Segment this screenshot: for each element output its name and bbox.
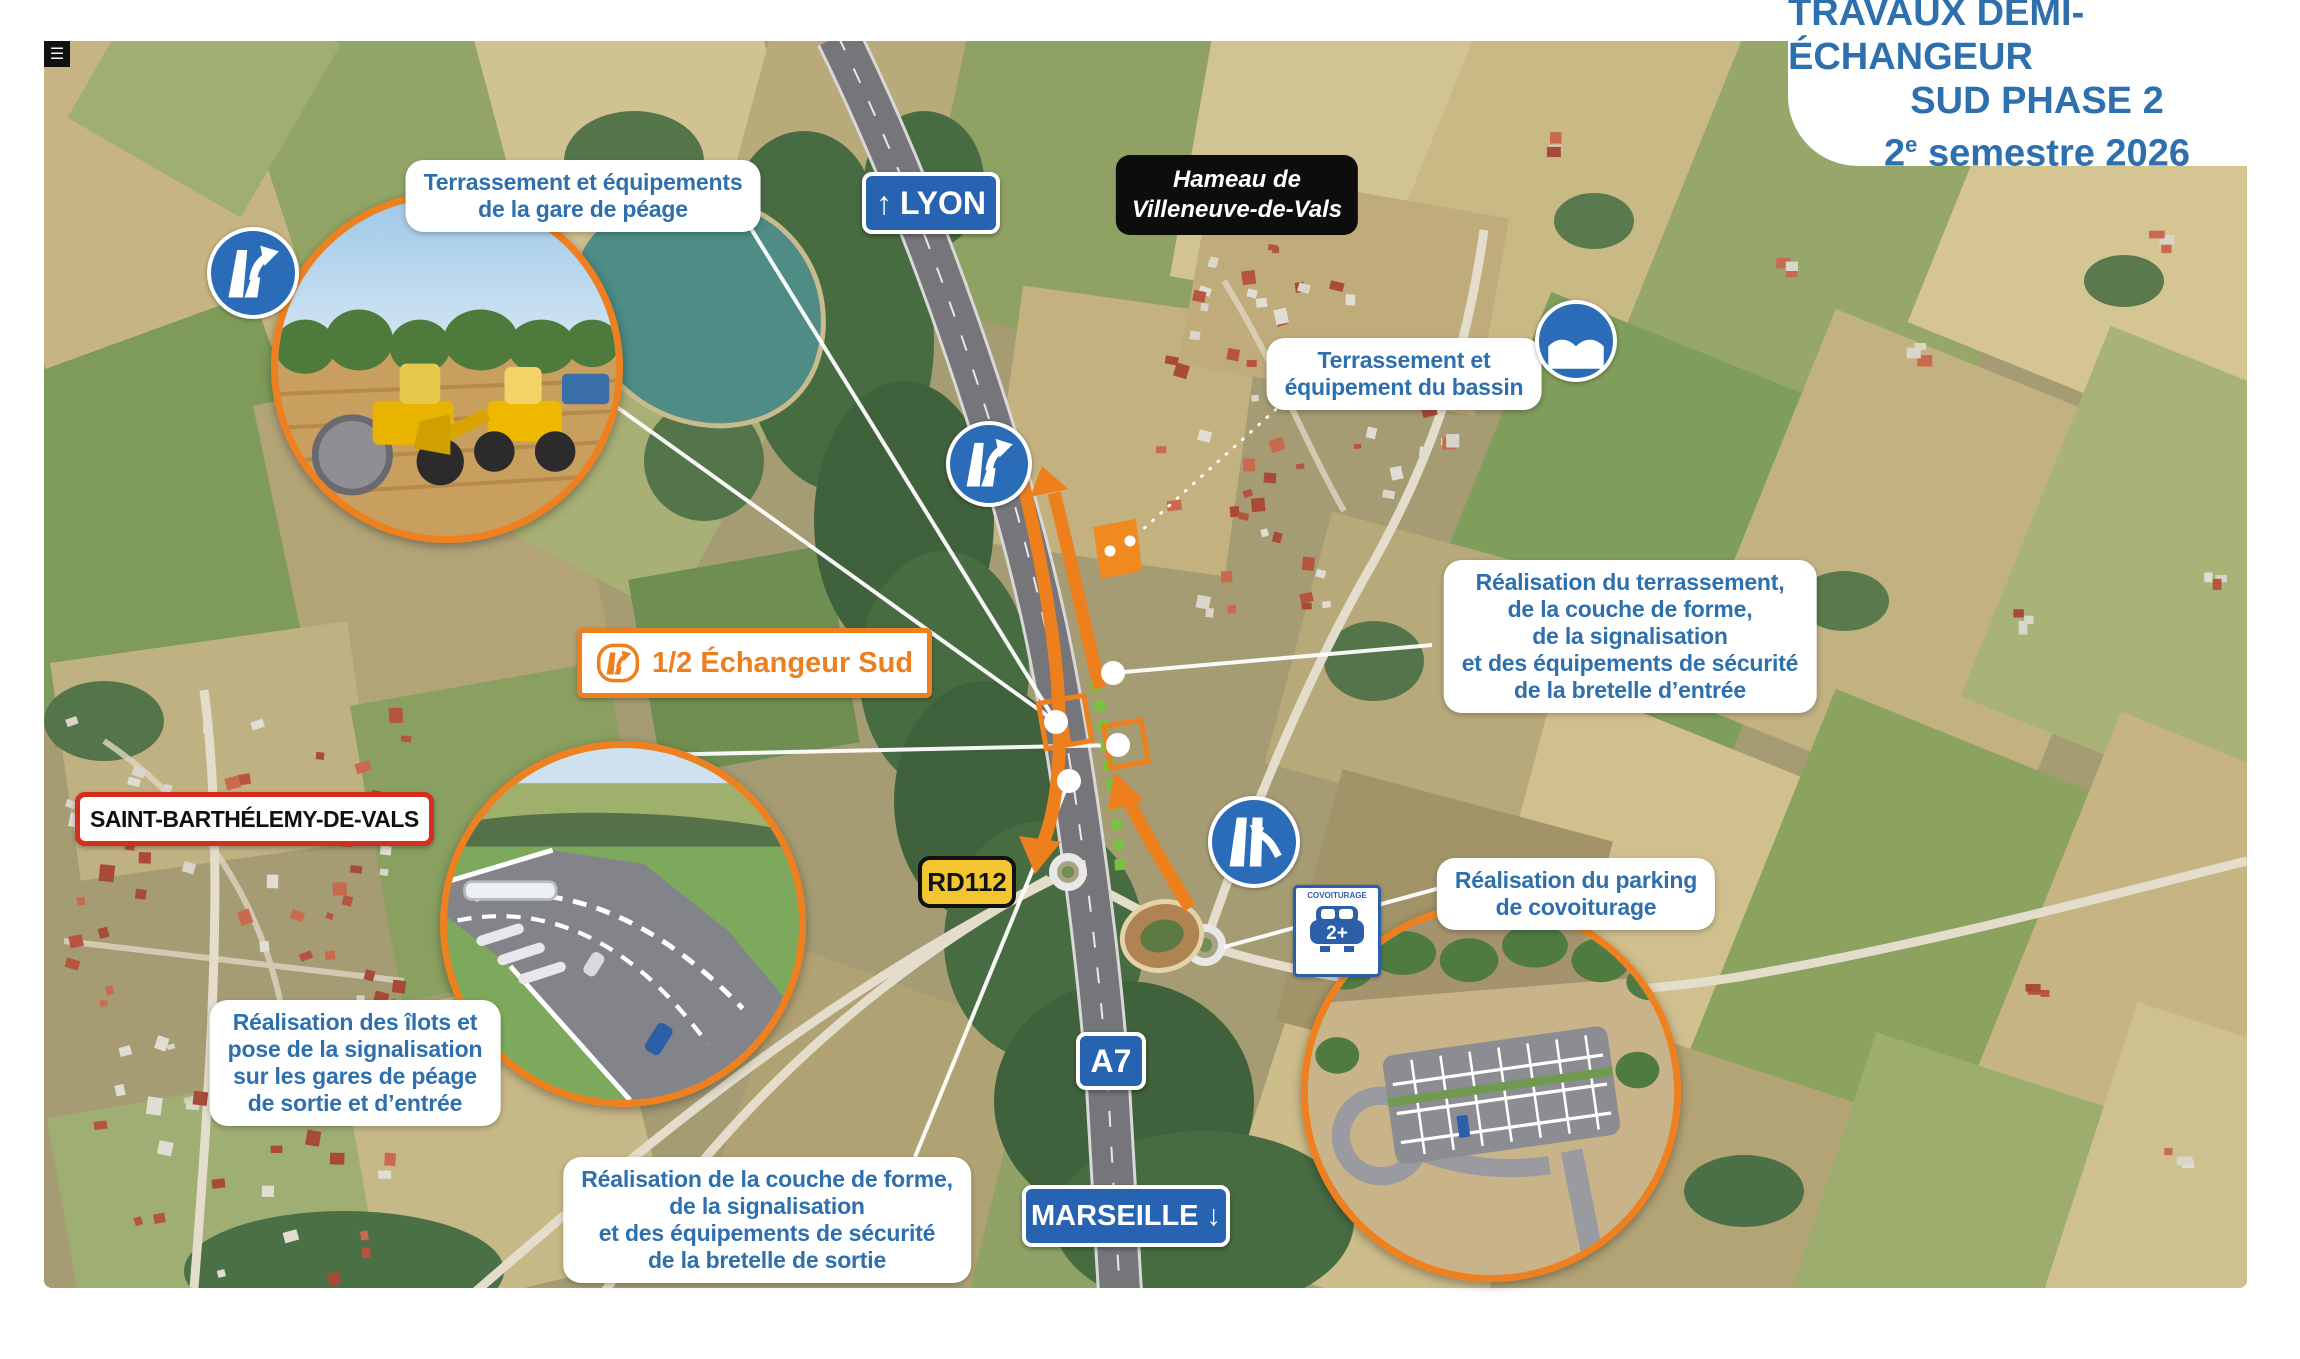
carpool-sign: COVOITURAGE 2+ [1293,885,1381,977]
inset-photo-toll-earthworks [271,191,623,543]
rd112-route-sign: RD112 [918,856,1016,908]
title-line-2: SUD PHASE 2 [1910,79,2163,123]
interchange-exit-icon [596,641,640,685]
title-line-3: 2e semestre 2026 [1884,123,2190,176]
water-basin-icon [1535,300,1617,382]
title-line-1: TRAVAUX DEMI-ÉCHANGEUR [1788,0,2286,79]
hamlet-sign: Hameau deVilleneuve-de-Vals [1116,155,1358,235]
town-label: SAINT-BARTHÉLEMY-DE-VALS [90,806,419,833]
lyon-direction-sign: ↑ LYON [862,172,1000,234]
carpool-sign-title: COVOITURAGE [1307,891,1367,900]
down-arrow-icon: ↓ [1207,1200,1222,1233]
menu-glyph: ☰ [50,44,64,64]
town-entrance-sign: SAINT-BARTHÉLEMY-DE-VALS [75,792,434,846]
callout-exit-ramp: Réalisation de la couche de forme,de la … [563,1157,971,1283]
up-arrow-icon: ↑ [876,185,892,222]
menu-icon[interactable]: ☰ [44,41,70,67]
half-interchange-label: 1/2 Échangeur Sud [577,628,932,698]
carpool-car-icon: 2+ [1302,900,1372,958]
rd112-label: RD112 [927,867,1007,898]
a7-label: A7 [1091,1043,1132,1080]
title-box: TRAVAUX DEMI-ÉCHANGEUR SUD PHASE 2 2e se… [1788,0,2300,166]
marseille-direction-sign: MARSEILLE ↓ [1022,1185,1230,1247]
motorway-entry-icon [1208,796,1300,888]
callout-entry-ramp: Réalisation du terrassement,de la couche… [1444,560,1817,713]
motorway-exit-icon [946,421,1032,507]
basin-patch [1093,519,1142,579]
infographic-page: COVOITURAGE 2+ ↑ LYON MARSEILLE ↓ A7 RD1… [0,0,2300,1359]
callout-toll-islands: Réalisation des îlots etpose de la signa… [210,1000,501,1126]
svg-text:2+: 2+ [1326,923,1348,944]
callout-carpool: Réalisation du parkingde covoiturage [1437,858,1715,930]
motorway-exit-icon [207,227,299,319]
interchange-label-text: 1/2 Échangeur Sud [652,647,913,680]
callout-basin: Terrassement etéquipement du bassin [1267,338,1542,410]
a7-route-sign: A7 [1076,1032,1146,1090]
callout-toll-terracing: Terrassement et équipementsde la gare de… [406,160,761,232]
lyon-label: LYON [900,185,986,222]
marseille-label: MARSEILLE [1031,1200,1199,1233]
